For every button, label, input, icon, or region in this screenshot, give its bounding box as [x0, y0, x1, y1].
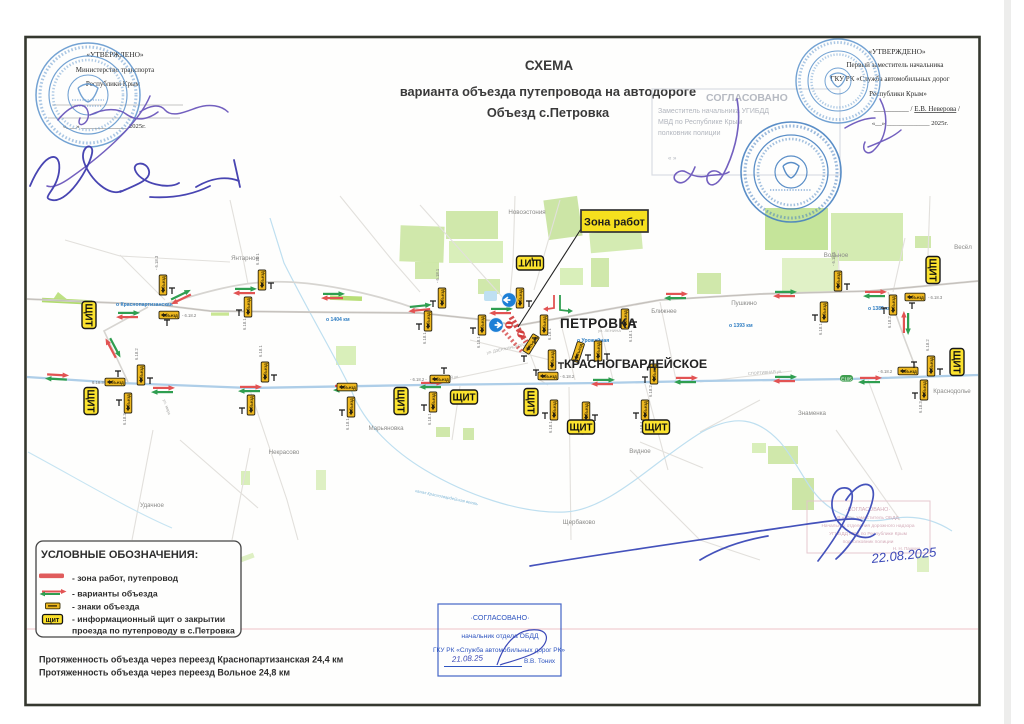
- svg-text:- зона работ, путепровод: - зона работ, путепровод: [72, 573, 179, 583]
- svg-text:МВД по Республике Крым: МВД по Республике Крым: [658, 118, 742, 126]
- svg-text:«УТВЕРЖДЕНО»: «УТВЕРЖДЕНО»: [868, 47, 926, 56]
- svg-text:6.18.3: 6.18.3: [918, 401, 923, 413]
- svg-text:6.18.1: 6.18.1: [427, 413, 432, 425]
- svg-text:6.18.1: 6.18.1: [255, 253, 260, 265]
- svg-text:«__» _____________ 2025г.: «__» _____________ 2025г.: [872, 120, 948, 127]
- svg-text:6.18.1: 6.18.1: [345, 418, 350, 430]
- svg-text:ГКУ РК «Служба автомобильных д: ГКУ РК «Служба автомобильных дорог: [831, 75, 950, 83]
- svg-text:- 6.18.2: - 6.18.2: [878, 369, 893, 374]
- svg-text:Пушкино: Пушкино: [731, 300, 757, 307]
- svg-text:ПЕТРОВКА: ПЕТРОВКА: [560, 316, 637, 331]
- svg-text:Удачное: Удачное: [140, 502, 164, 509]
- svg-text:Е105: Е105: [841, 376, 852, 381]
- svg-text:Протяженность объезда через пе: Протяженность объезда через переезд Воль…: [39, 668, 290, 678]
- svg-text:6.18.1: 6.18.1: [422, 332, 427, 344]
- svg-text:полковник полиции: полковник полиции: [658, 130, 721, 137]
- svg-text:- 6.18.3: - 6.18.3: [154, 255, 159, 270]
- svg-text:о 1389 км: о 1389 км: [868, 306, 892, 312]
- svg-text:6.18.2: 6.18.2: [134, 348, 139, 360]
- svg-text:УСЛОВНЫЕ ОБОЗНАЧЕНИЯ:: УСЛОВНЫЕ ОБОЗНАЧЕНИЯ:: [41, 549, 198, 561]
- svg-text:6.18.1: 6.18.1: [548, 421, 553, 433]
- svg-text:Весёл: Весёл: [954, 244, 972, 251]
- svg-text:6.18.1: 6.18.1: [818, 323, 823, 335]
- svg-text:- 6.18.3: - 6.18.3: [928, 295, 943, 300]
- svg-text:Видное: Видное: [629, 448, 651, 455]
- svg-text:Зона работ: Зона работ: [584, 217, 646, 229]
- svg-text:щит: щит: [46, 617, 60, 624]
- svg-text:СХЕМА: СХЕМА: [525, 58, 573, 73]
- svg-text:6.18.3 -: 6.18.3 -: [92, 380, 107, 385]
- svg-text:6.18.3: 6.18.3: [122, 413, 127, 425]
- svg-text:·СОГЛАСОВАНО·: ·СОГЛАСОВАНО·: [470, 613, 529, 622]
- svg-text:6.18.1: 6.18.1: [258, 345, 263, 357]
- svg-text:о Краснопартизанская: о Краснопартизанская: [116, 302, 173, 308]
- svg-text:начальник отдела ОБДД: начальник отдела ОБДД: [461, 633, 539, 640]
- svg-text:КРАСНОГВАРДЕЙСКОЕ: КРАСНОГВАРДЕЙСКОЕ: [564, 356, 707, 371]
- svg-text:Некрасово: Некрасово: [269, 449, 300, 456]
- svg-text:- 6.18.2: - 6.18.2: [182, 313, 197, 318]
- svg-text:Протяженность объезда через пе: Протяженность объезда через переезд Крас…: [39, 655, 344, 665]
- svg-text:- 6.18.1: - 6.18.1: [831, 251, 836, 266]
- svg-text:6.18.2: 6.18.2: [887, 316, 892, 328]
- svg-text:- 6.18.2 -: - 6.18.2 -: [410, 377, 427, 382]
- svg-text:Объезд с.Петровка: Объезд с.Петровка: [487, 105, 610, 120]
- svg-text:проезда по путепроводу в с.Пет: проезда по путепроводу в с.Петровка: [72, 626, 235, 636]
- svg-text:__________ / Е.В. Неверова /: __________ / Е.В. Неверова /: [873, 105, 960, 113]
- svg-text:Вольное: Вольное: [824, 252, 849, 259]
- svg-text:21.08.25: 21.08.25: [451, 653, 484, 664]
- svg-text:Ближнее: Ближнее: [651, 308, 677, 315]
- svg-text:о 1393 км: о 1393 км: [729, 323, 753, 329]
- svg-text:ГКУ РК «Служба автомобильных д: ГКУ РК «Служба автомобильных дорог РК»: [433, 646, 565, 654]
- svg-text:6.18.1: 6.18.1: [242, 318, 247, 330]
- svg-text:6.18.2: 6.18.2: [648, 385, 653, 397]
- svg-text:6.18.1: 6.18.1: [547, 328, 552, 340]
- svg-text:УГИБДД МВД по Республике Крым: УГИБДД МВД по Республике Крым: [829, 531, 907, 537]
- svg-text:Знаменка: Знаменка: [798, 410, 827, 417]
- svg-text:6.18.1: 6.18.1: [628, 330, 633, 342]
- svg-text:о 1404 км: о 1404 км: [326, 317, 350, 323]
- svg-text:Щербаково: Щербаково: [563, 519, 596, 526]
- svg-text:Начальник отделения дорожного: Начальник отделения дорожного надзора: [821, 523, 914, 529]
- svg-text:- знаки объезда: - знаки объезда: [72, 602, 140, 612]
- svg-text:6.18.1: 6.18.1: [476, 336, 481, 348]
- svg-text:« »: « »: [668, 156, 677, 162]
- svg-text:- 6.18.2: - 6.18.2: [560, 374, 575, 379]
- svg-text:СОГЛАСОВАНО: СОГЛАСОВАНО: [706, 92, 788, 104]
- svg-text:6.18.2: 6.18.2: [925, 339, 930, 351]
- svg-text:В.В. Тоних: В.В. Тоних: [524, 658, 556, 665]
- svg-text:Республики Крым: Республики Крым: [86, 80, 141, 88]
- svg-text:Новоэстония: Новоэстония: [508, 209, 545, 216]
- svg-text:Краснодолье: Краснодолье: [933, 388, 971, 395]
- svg-text:Марьяновка: Марьяновка: [368, 425, 404, 432]
- svg-text:- 6.18.1: - 6.18.1: [435, 268, 440, 283]
- svg-text:Заместитель начальника УГИБДД: Заместитель начальника УГИБДД: [658, 108, 769, 115]
- svg-text:- информационный щит о закрыти: - информационный щит о закрытии: [72, 614, 225, 624]
- svg-text:- варианты объезда: - варианты объезда: [72, 589, 158, 599]
